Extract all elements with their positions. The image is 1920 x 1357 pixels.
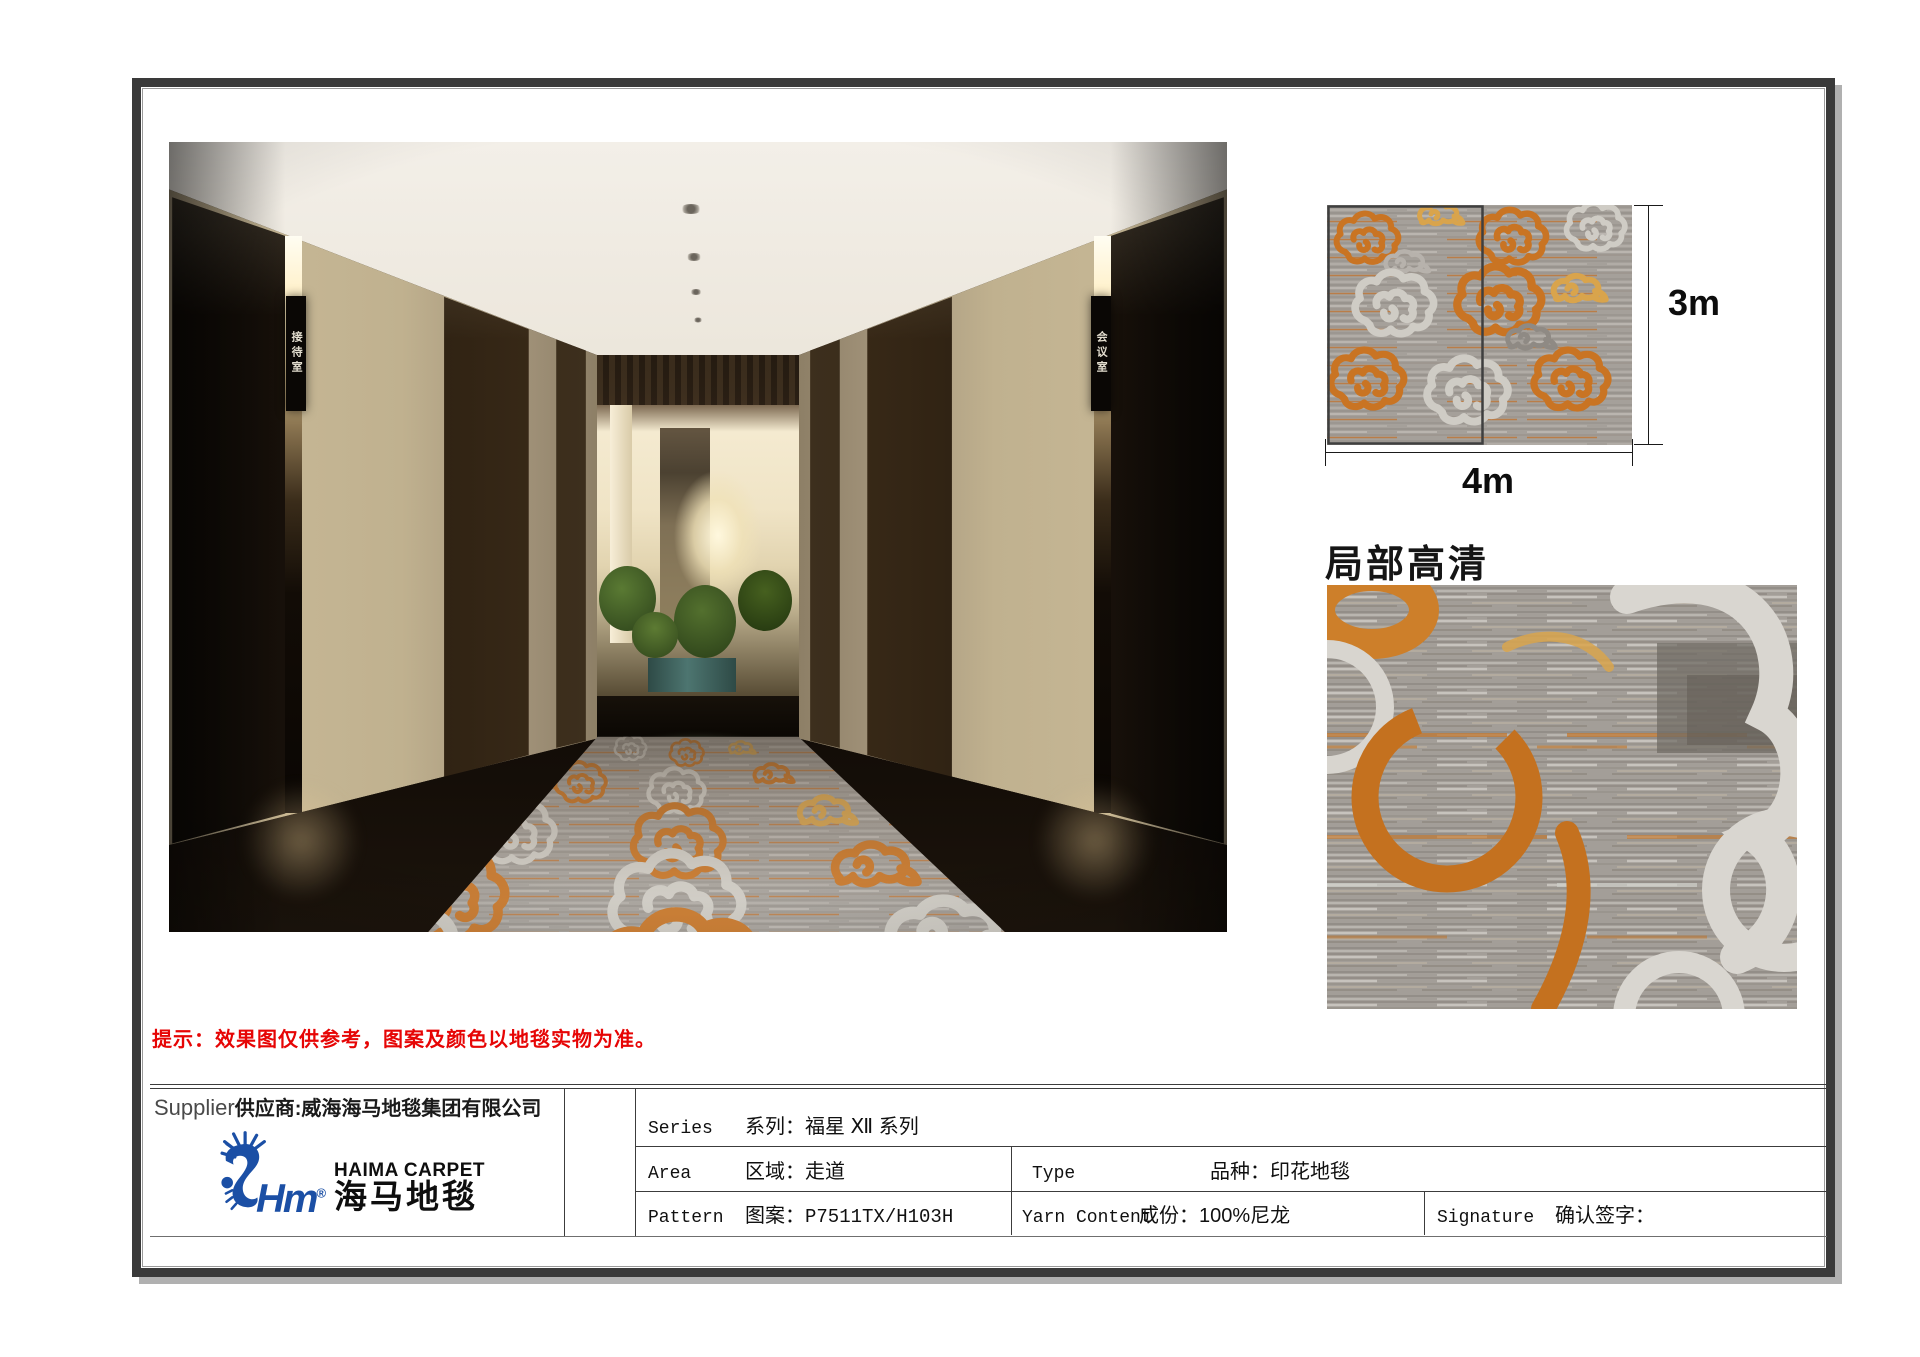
detail-title: 局部高清 — [1325, 533, 1489, 588]
pattern-value: P7511TX/H103H — [805, 1206, 953, 1228]
registered-mark: ® — [316, 1186, 326, 1201]
series-label-zh: 系列： — [745, 1116, 805, 1138]
carpet-detail-image — [1327, 585, 1797, 1009]
spec-row-series: Series 系列：福星 Ⅻ 系列 — [635, 1089, 1826, 1147]
width-dimension-label: 4m — [1438, 460, 1538, 502]
height-dim-tick-bottom — [1634, 444, 1663, 445]
signature-cell: Signature 确认签字： — [1425, 1192, 1826, 1235]
yarn-content-cell: Yarn Content 成份：100%尼龙 — [1012, 1192, 1425, 1235]
corridor-vignette — [169, 142, 1227, 932]
type-label-en: Type — [1032, 1164, 1210, 1184]
pattern-cell: Pattern 图案： P7511TX/H103H — [635, 1192, 1012, 1235]
area-label-zh: 区域： — [745, 1161, 805, 1183]
yarn-label-en: Yarn Content — [1022, 1208, 1139, 1228]
carpet-swatch-image — [1327, 205, 1632, 445]
supplier-cell: Supplier供应商:威海海马地毯集团有限公司 — [150, 1089, 565, 1236]
series-label-en: Series — [648, 1119, 745, 1139]
series-value: 福星 Ⅻ 系列 — [805, 1116, 919, 1138]
supplier-label-zh: 供应商: — [235, 1098, 302, 1120]
area-cell: Area 区域：走道 — [635, 1147, 1012, 1191]
pattern-label-en: Pattern — [648, 1208, 745, 1228]
haima-logo: Hm® HAIMA CARPET 海马地毯 — [208, 1131, 564, 1215]
spec-row-area-type: Area 区域：走道 Type 品种：印花地毯 — [635, 1147, 1826, 1192]
height-dim-tick-top — [1634, 205, 1663, 206]
type-label-zh: 品种： — [1210, 1161, 1270, 1183]
yarn-label-zh: 成份： — [1139, 1205, 1199, 1227]
logo-monogram: Hm® — [256, 1183, 326, 1215]
pattern-label-zh: 图案： — [745, 1205, 805, 1227]
area-label-en: Area — [648, 1164, 745, 1184]
type-value: 印花地毯 — [1270, 1161, 1350, 1183]
width-dimension-line — [1325, 452, 1633, 453]
area-value: 走道 — [805, 1161, 845, 1183]
table-bottom-line — [150, 1236, 1827, 1237]
width-dim-tick-right — [1632, 439, 1633, 466]
spec-table: Series 系列：福星 Ⅻ 系列 Area 区域：走道 Type 品种：印花地… — [635, 1089, 1827, 1236]
supplier-label-en: Supplier — [154, 1095, 235, 1120]
supplier-line: Supplier供应商:威海海马地毯集团有限公司 — [150, 1089, 564, 1121]
supplier-name: 威海海马地毯集团有限公司 — [301, 1098, 541, 1120]
signature-label-en: Signature — [1437, 1208, 1555, 1228]
height-dimension-line — [1648, 205, 1649, 445]
series-cell: Series 系列：福星 Ⅻ 系列 — [635, 1089, 1826, 1146]
width-dim-tick-left — [1325, 439, 1326, 466]
logo-brand-text: HAIMA CARPET 海马地毯 — [334, 1161, 485, 1215]
type-cell: Type 品种：印花地毯 — [1012, 1147, 1826, 1191]
yarn-value: 100%尼龙 — [1199, 1205, 1290, 1227]
spec-row-pattern-yarn-signature: Pattern 图案： P7511TX/H103H Yarn Content 成… — [635, 1192, 1826, 1235]
corridor-render-image: 接待室 会议室 — [169, 142, 1227, 932]
height-dimension-label: 3m — [1668, 282, 1720, 324]
brand-name-zh: 海马地毯 — [334, 1180, 485, 1215]
signature-label-zh: 确认签字： — [1555, 1205, 1655, 1227]
notice-text: 提示：效果图仅供参考，图案及颜色以地毯实物为准。 — [152, 1023, 656, 1052]
